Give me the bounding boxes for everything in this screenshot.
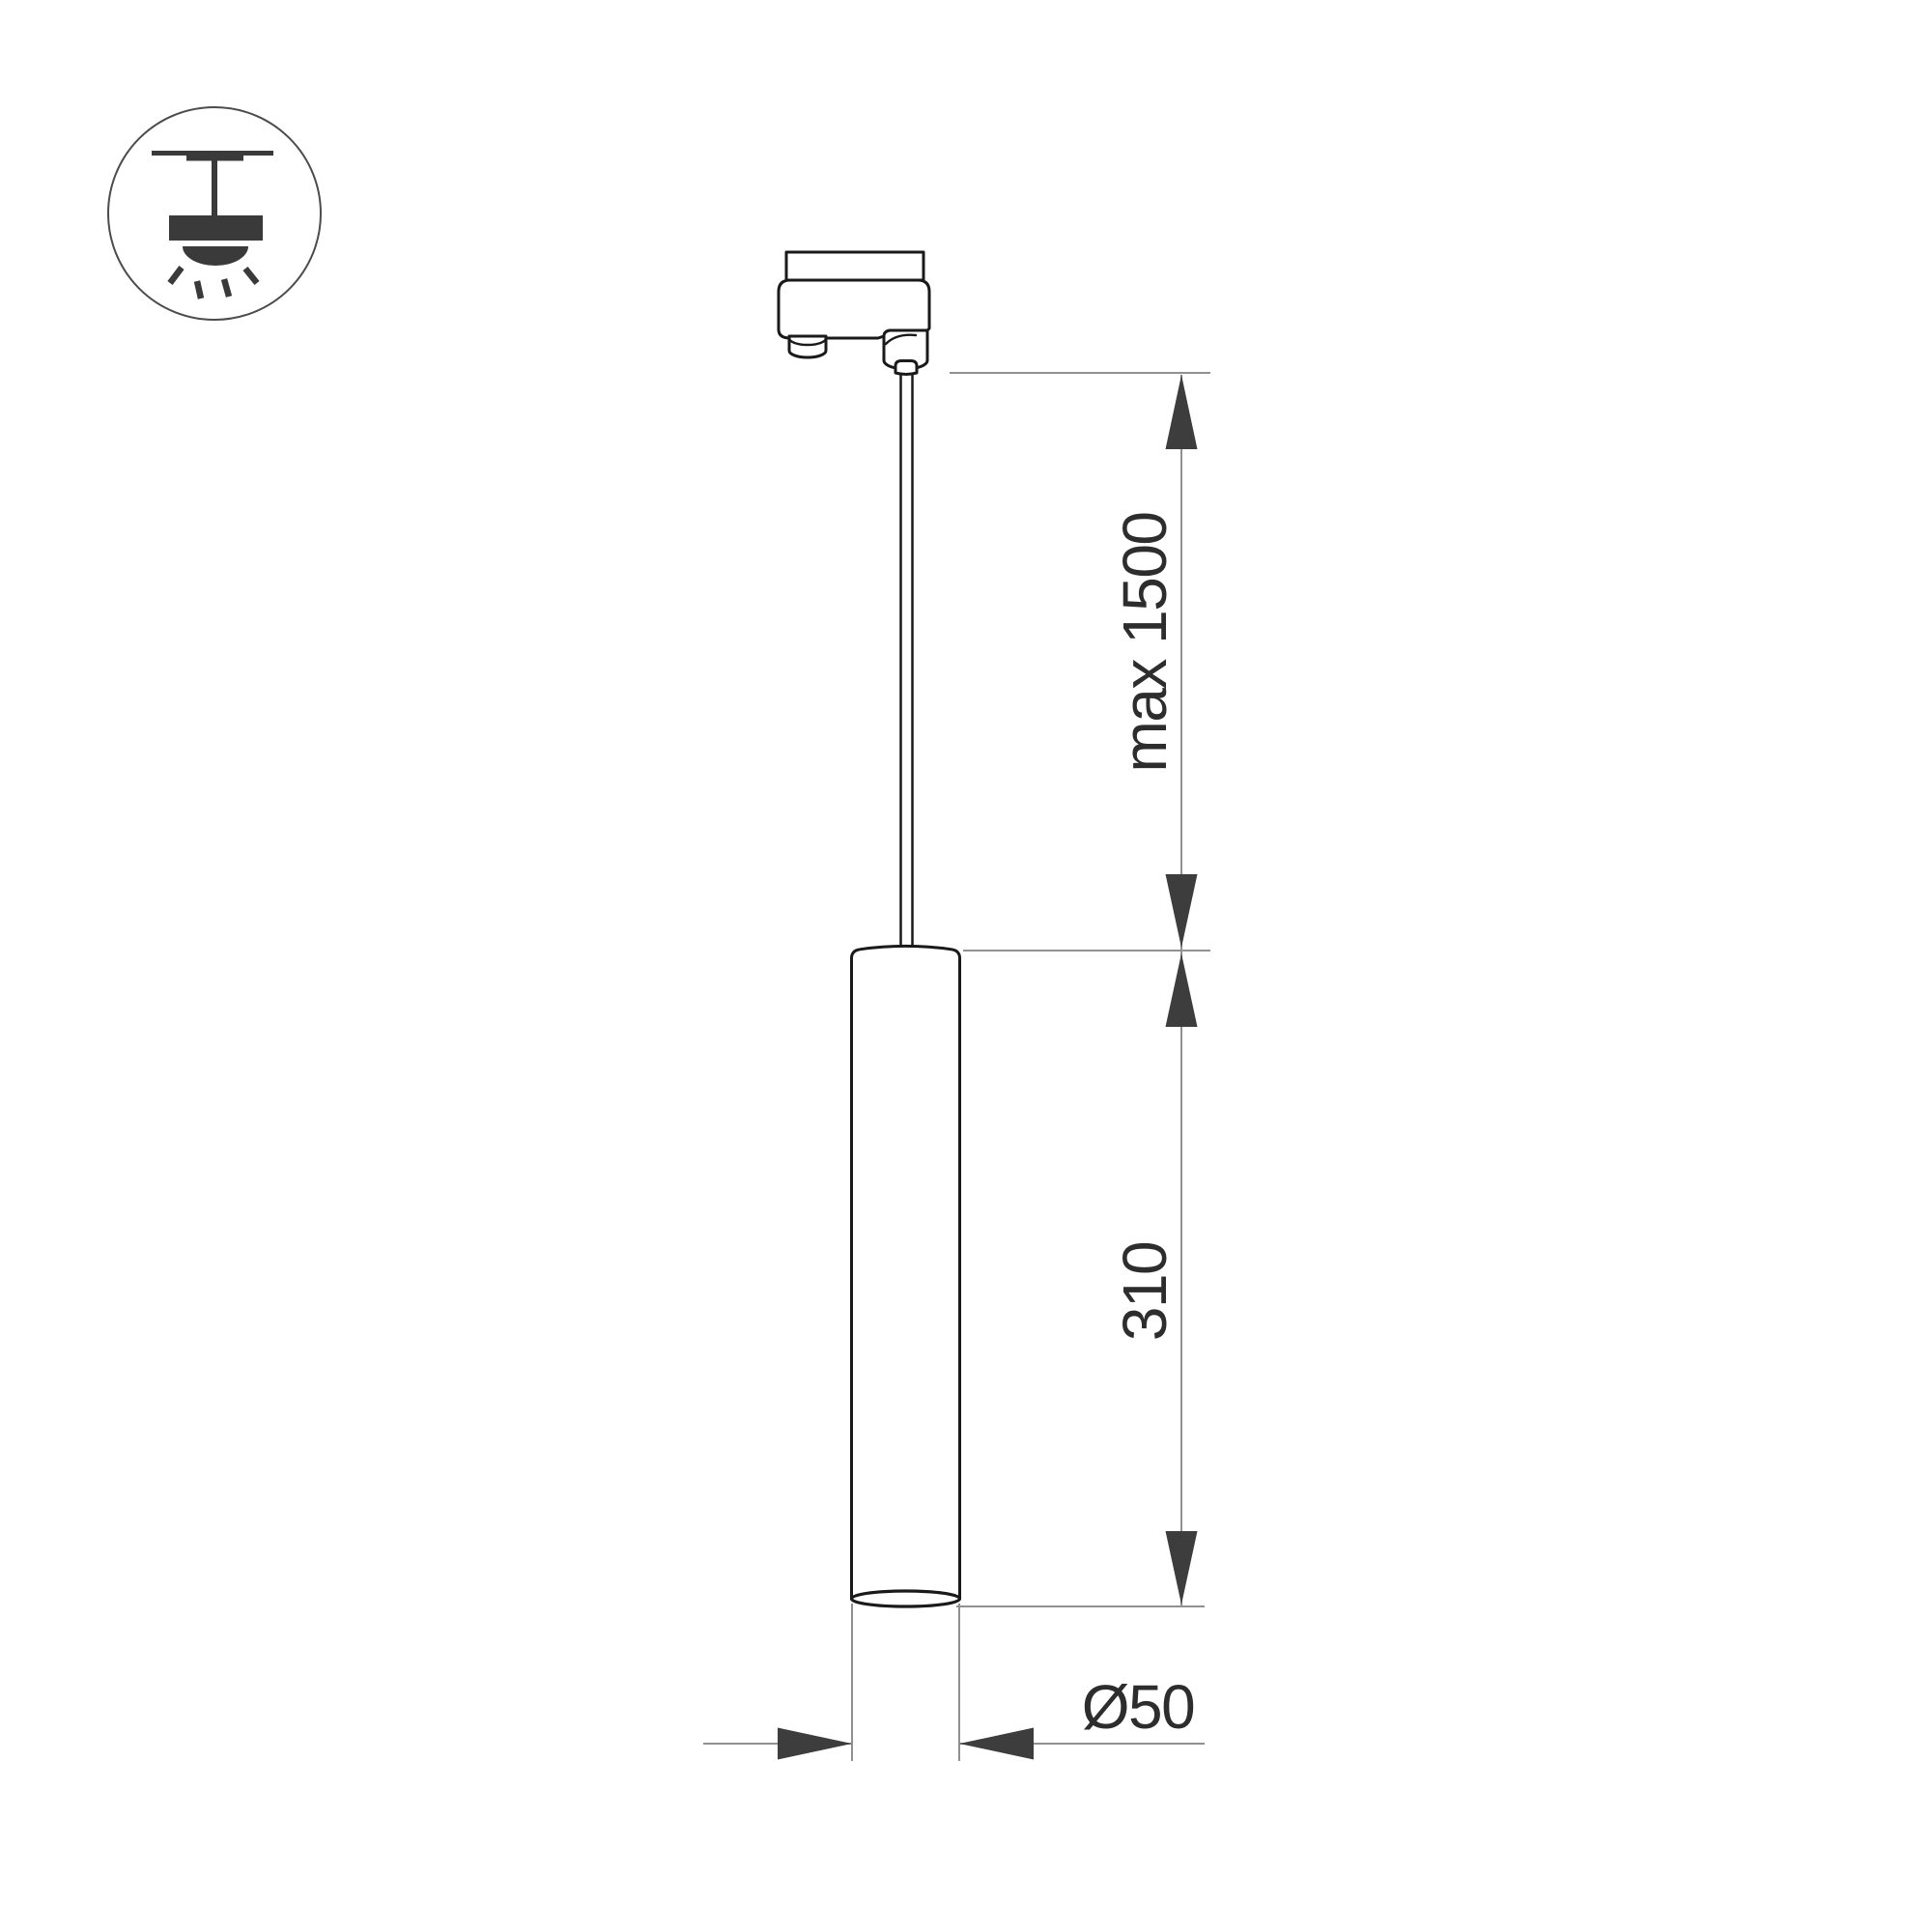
suspension-cable	[901, 371, 913, 951]
icon-lamp-housing	[169, 215, 263, 241]
icon-stem	[212, 160, 217, 215]
drawing-canvas: max 1500 310 Ø50	[0, 0, 1932, 1932]
arrow-left-icon	[959, 1728, 1034, 1760]
luminaire-drawing	[779, 252, 960, 1606]
ceiling-line	[152, 151, 273, 156]
arrow-down-icon	[1166, 1531, 1198, 1605]
lamp-body	[852, 946, 960, 1599]
light-ray-icon	[197, 281, 201, 298]
cable-collar	[895, 361, 917, 375]
adapter-knob	[789, 336, 826, 357]
track-connector	[786, 252, 923, 280]
arrow-up-icon	[1166, 375, 1198, 449]
track-adapter	[779, 252, 929, 375]
arrow-up-icon	[1166, 953, 1198, 1027]
track-bar	[186, 156, 243, 161]
arrow-down-icon	[1166, 874, 1198, 948]
dimension-body-height: 310	[1110, 953, 1198, 1605]
mount-type-icon	[108, 107, 321, 320]
suspension-length-label: max 1500	[1110, 512, 1179, 772]
pendant-light-technical-drawing: max 1500 310 Ø50	[0, 0, 1932, 1932]
diameter-label: Ø50	[1082, 1672, 1194, 1742]
dimension-diameter: Ø50	[703, 1672, 1205, 1760]
body-height-label: 310	[1110, 1242, 1179, 1341]
arrow-right-icon	[778, 1728, 852, 1760]
lamp-cylinder	[852, 946, 960, 1606]
lamp-aperture	[852, 1591, 960, 1606]
adapter-body	[779, 280, 929, 338]
